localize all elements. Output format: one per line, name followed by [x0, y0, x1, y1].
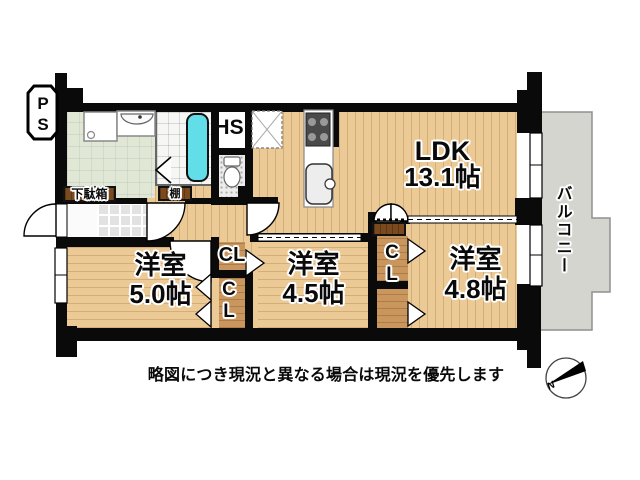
bedroom-4-8-name: 洋室 [418, 246, 533, 273]
washroom-floor [67, 110, 155, 198]
shoe-cabinet-label: 下駄箱 [63, 188, 116, 200]
ldk-size: 13.1帖 [385, 164, 500, 191]
closet-c-label: CL [383, 242, 401, 286]
ldk-name: LDK [385, 137, 500, 165]
closet-a-label: CL [211, 245, 253, 266]
wall-segment [517, 306, 541, 350]
disclaimer-text: 略図につき現況と異なる場合は現況を優先します [140, 368, 512, 385]
compass-icon: N [545, 358, 586, 398]
shelf-label: 棚 [158, 189, 192, 200]
hs-label: HS [212, 117, 246, 139]
wall-segment [211, 148, 253, 155]
compass-north-label: N [545, 379, 557, 392]
closet-b-label: CL [220, 279, 238, 323]
wall-segment [67, 88, 83, 103]
bedroom-4-5-size: 4.5帖 [256, 280, 371, 307]
floor-plan: N PS HS 下駄箱 棚 LDK 13.1帖 洋室 5.0帖 洋室 4.5帖 … [0, 0, 640, 480]
entry-tile-floor [97, 203, 153, 237]
bedroom-4-8-size: 4.8帖 [418, 276, 533, 303]
wall-segment [245, 270, 253, 330]
shelf-box-east [372, 222, 406, 236]
entry-landing [67, 203, 97, 237]
ps-label: PS [32, 93, 54, 135]
wall-segment [56, 237, 174, 247]
bedroom-5-name: 洋室 [98, 252, 223, 279]
wall-segment [517, 90, 542, 133]
wall-segment [527, 349, 541, 368]
balcony-area [540, 112, 610, 330]
wall-segment [250, 233, 376, 242]
wall-segment [329, 108, 339, 147]
wall-segment [212, 197, 278, 205]
wall-segment [56, 328, 521, 341]
entry-door-arc [24, 204, 67, 237]
wall-segment [55, 103, 542, 112]
bedroom-4-5-name: 洋室 [256, 251, 371, 278]
balcony-label: バルコニー [553, 170, 570, 290]
wall-segment [515, 198, 542, 225]
bedroom-5-size: 5.0帖 [98, 281, 223, 308]
bathtub [186, 113, 209, 182]
